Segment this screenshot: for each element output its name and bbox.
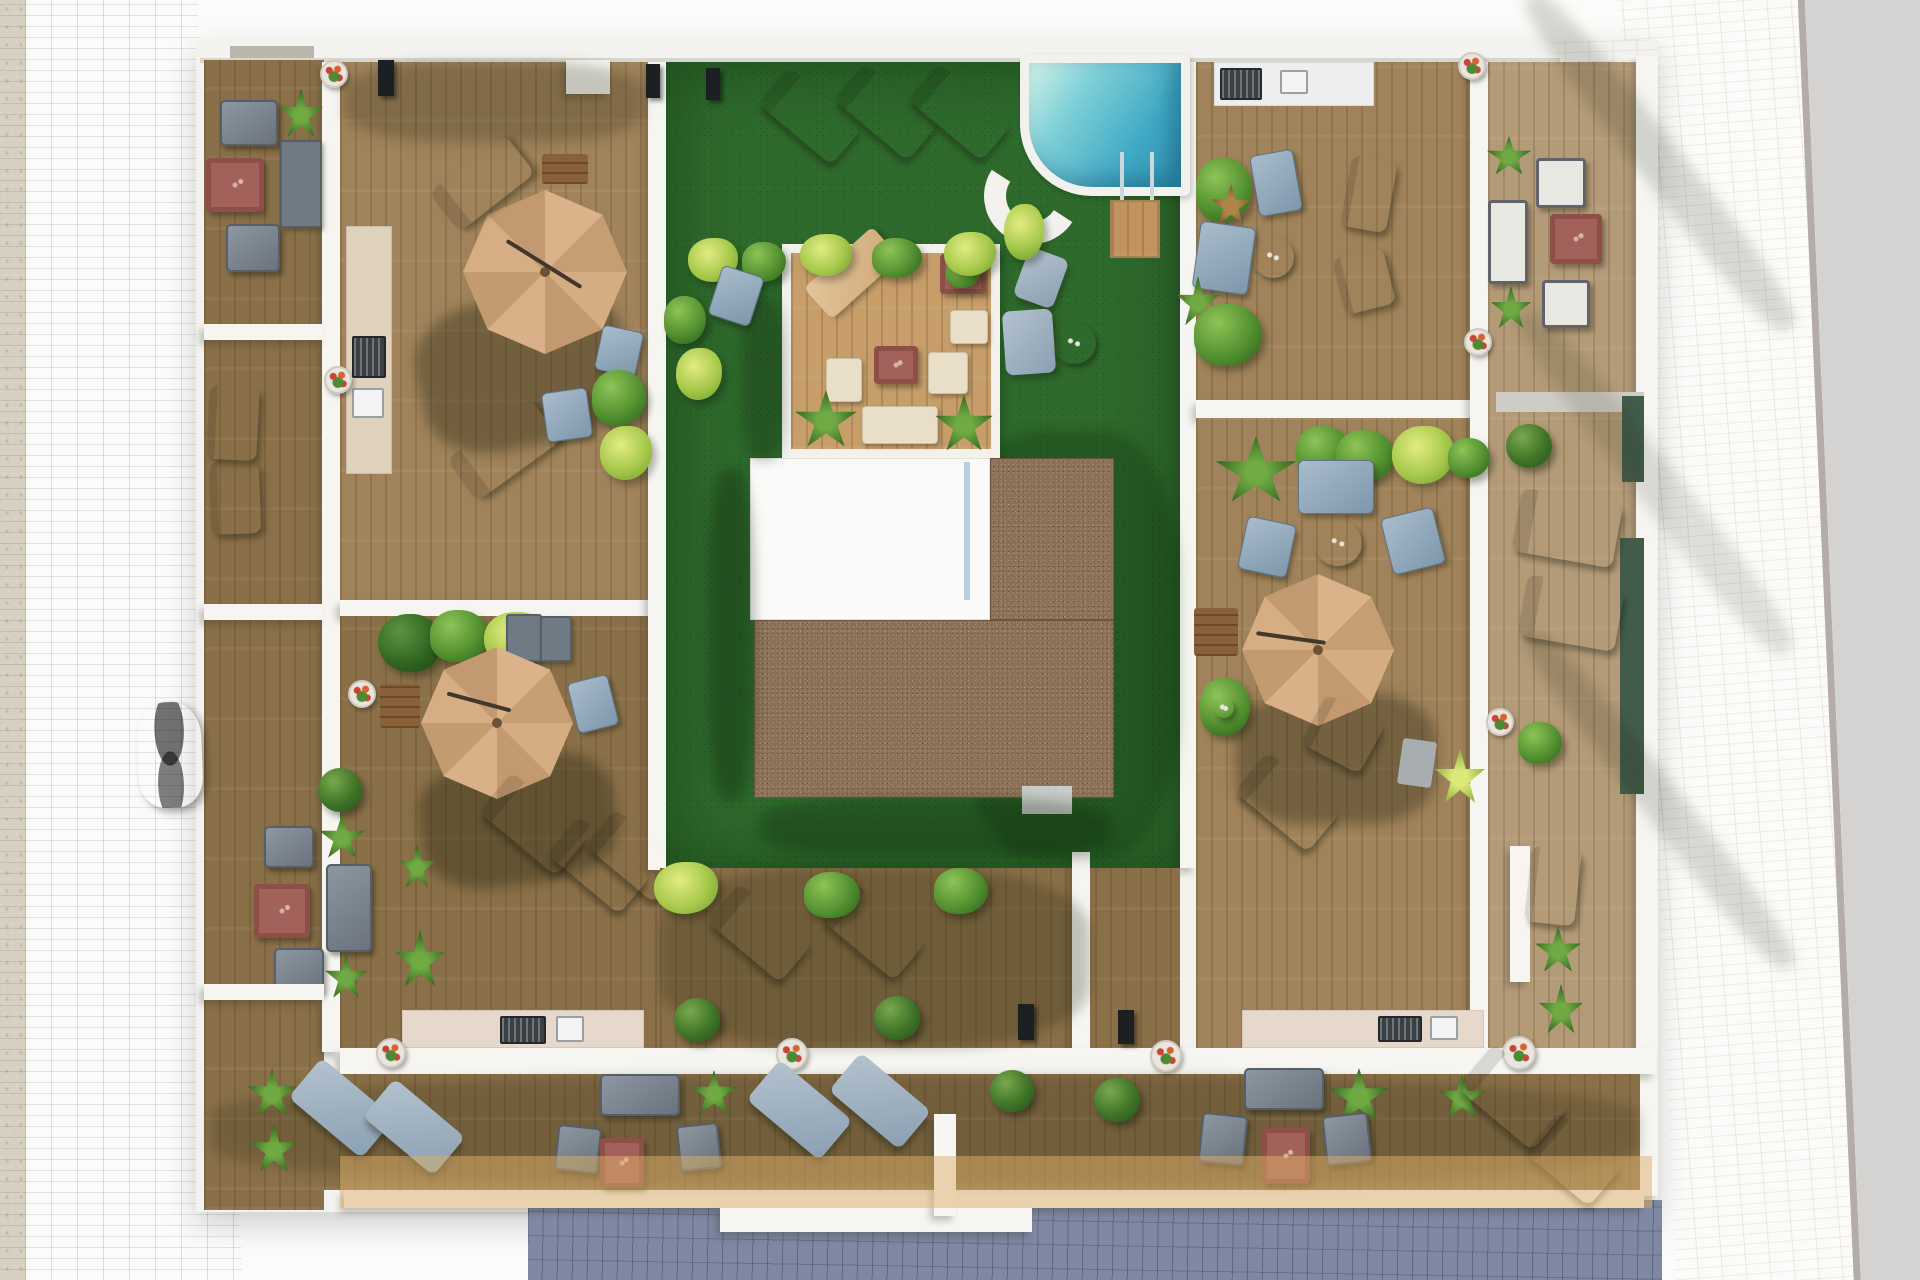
lounger-strip-2 <box>209 461 261 535</box>
flowerpot-rc-1 <box>1458 52 1486 80</box>
platform-seat <box>826 358 862 402</box>
fire-table-strip-top <box>206 158 264 212</box>
grill-bottom-right <box>1378 1016 1422 1042</box>
fire-bowl-tr <box>1252 236 1294 278</box>
flowerpot-rc-2 <box>1464 328 1492 356</box>
topiary-bc-low <box>990 1070 1034 1112</box>
wall-grass-left <box>648 62 666 870</box>
chair-strip-top <box>226 224 280 272</box>
topiary-rc <box>1506 424 1552 468</box>
bench-mr <box>1194 608 1238 656</box>
platform-sofa <box>862 406 938 444</box>
topiary-bc-2 <box>874 996 920 1040</box>
mat-mr <box>1397 738 1437 788</box>
flowerpot-band-3 <box>1150 1040 1182 1072</box>
lounger-rc-3 <box>1524 846 1582 927</box>
platform-fire-table <box>874 346 918 384</box>
bollard-topleft <box>378 60 394 96</box>
pot-dark-mr <box>1214 698 1234 718</box>
bench-topleft <box>542 154 588 184</box>
grill-bottom-left <box>500 1016 546 1044</box>
sun-strip-bottom <box>340 1156 1652 1208</box>
wall-strip-seg-2 <box>204 604 324 620</box>
wall-band-bottom <box>340 1048 1656 1074</box>
wall-divider-right <box>1196 400 1486 418</box>
chair-white-rc-2 <box>1542 280 1590 328</box>
topiary-br-low <box>1094 1078 1140 1122</box>
shade-core-bottom <box>760 798 1112 856</box>
flowerpot-wall-3 <box>348 680 376 708</box>
platform-ottoman-1 <box>950 310 988 344</box>
flowerpot-wall-4 <box>1486 708 1514 736</box>
rooftop-aerial-render <box>0 0 1920 1280</box>
parasol-midright <box>1242 574 1394 726</box>
pool-ladder <box>1120 152 1154 200</box>
kitchen-grill-topright <box>1220 68 1262 100</box>
kitchen-grill-left <box>352 336 386 378</box>
sofa-gray-bc <box>600 1074 680 1116</box>
fire-table-rc <box>1550 214 1602 264</box>
kitchen-sink-left <box>352 388 384 418</box>
wall-column-left <box>1470 62 1488 1050</box>
sofa-strip-top <box>220 100 278 146</box>
core-pipe <box>964 462 970 600</box>
table-mr <box>1314 520 1362 566</box>
sofa-white-rc <box>1488 200 1528 284</box>
lawn-side-table <box>1052 322 1096 364</box>
flowerpot-band-1 <box>376 1038 406 1068</box>
wall-strip-seg-3 <box>204 984 324 1000</box>
wall-divider-left <box>340 600 650 616</box>
core-gravel-main <box>754 620 1114 798</box>
bollard-lawn <box>706 68 720 100</box>
sofa-gray-br <box>1244 1068 1324 1110</box>
sofa-blue-mr <box>1298 460 1374 514</box>
chair-white-rc-1 <box>1536 158 1586 208</box>
platform-ottoman-2 <box>928 352 968 394</box>
planter-strip-top <box>280 140 322 228</box>
cobble-bottom <box>528 1200 1662 1280</box>
pool-steps <box>1110 200 1160 258</box>
lounger-strip-1 <box>206 385 260 462</box>
topiary-strip <box>318 768 362 812</box>
sink-bottom-right <box>1430 1016 1458 1040</box>
flowerpot-wall-1 <box>324 366 352 394</box>
lawn-lounger-blue-2 <box>1002 308 1056 375</box>
flowerpot-wall-2 <box>320 60 348 88</box>
topiary-bc-1 <box>674 998 720 1042</box>
shade-core-left <box>708 470 754 800</box>
sofa-blue-tr <box>1192 220 1257 295</box>
chair-strip-low-1 <box>264 826 314 868</box>
core-roof-white <box>750 458 990 620</box>
bench-bl <box>380 684 420 728</box>
graybox-bl-2 <box>540 616 572 662</box>
kitchen-sink-topright <box>1280 70 1308 94</box>
bollard-lawn-2 <box>646 64 660 98</box>
chair-blue-topleft-2 <box>541 387 594 443</box>
bollard-bc-1 <box>1018 1004 1034 1040</box>
sofa-strip-low <box>326 864 372 952</box>
core-gravel-top <box>990 458 1114 620</box>
fire-table-strip-low <box>254 884 310 938</box>
wall-strip-seg-1 <box>204 324 324 340</box>
sink-bottom-left <box>556 1016 584 1042</box>
car-street <box>136 701 204 809</box>
wall-outer-bottom <box>720 1206 1032 1232</box>
bollard-bottom <box>1118 1010 1134 1044</box>
